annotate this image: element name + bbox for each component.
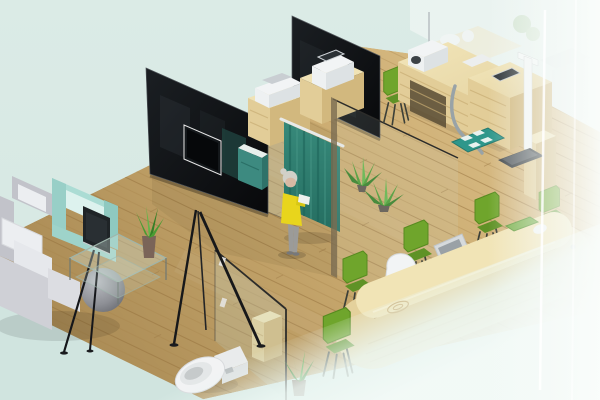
isometric-office-render bbox=[0, 0, 600, 400]
face bbox=[285, 178, 296, 188]
arm-cuff-hole bbox=[411, 56, 421, 64]
scene-canvas bbox=[0, 0, 600, 400]
partition-post bbox=[331, 97, 337, 278]
